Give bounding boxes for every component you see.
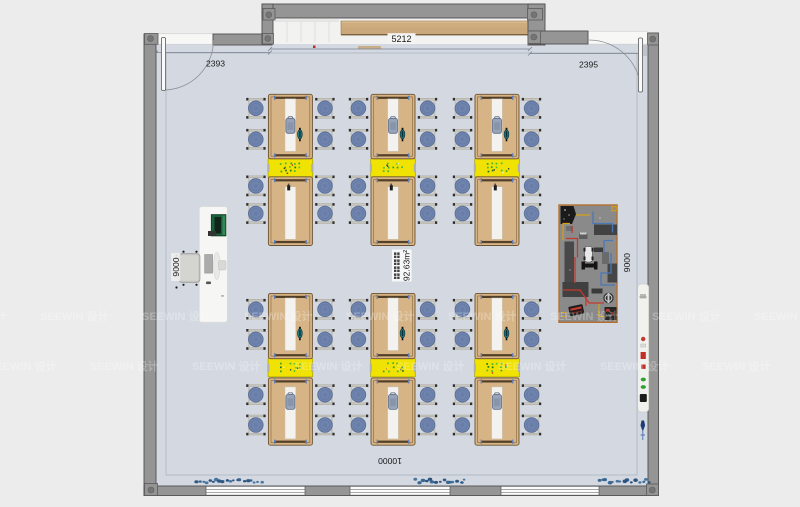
svg-text:9000: 9000 (622, 253, 632, 272)
svg-text:SEEWIN 设计: SEEWIN 设计 (0, 359, 56, 373)
svg-text:SEEWIN 设计: SEEWIN 设计 (192, 359, 260, 373)
svg-text:SEEWIN 设计: SEEWIN 设计 (652, 309, 720, 323)
svg-text:SEEWIN 设计: SEEWIN 设计 (294, 359, 362, 373)
svg-text:SEEWIN 设计: SEEWIN 设计 (90, 359, 158, 373)
svg-text:SEEWIN 设计: SEEWIN 设计 (550, 309, 618, 323)
svg-text:SEEWIN 设计: SEEWIN 设计 (600, 359, 668, 373)
svg-text:SEEWIN 设计: SEEWIN 设计 (244, 309, 312, 323)
svg-text:SEEWIN 设计: SEEWIN 设计 (448, 309, 516, 323)
svg-text:2393: 2393 (206, 59, 225, 69)
svg-text:SEEWIN 设计: SEEWIN 设计 (498, 359, 566, 373)
svg-text:9000: 9000 (171, 257, 181, 276)
svg-text:SEEWIN 设计: SEEWIN 设计 (396, 359, 464, 373)
svg-text:SEEWIN 设计: SEEWIN 设计 (346, 309, 414, 323)
svg-text:SEEWIN 设计: SEEWIN 设计 (754, 309, 800, 323)
svg-text:2395: 2395 (579, 60, 598, 70)
svg-text:5212: 5212 (391, 34, 411, 44)
svg-text:SEEWIN 设计: SEEWIN 设计 (702, 359, 770, 373)
svg-text:SEEWIN 设计: SEEWIN 设计 (0, 309, 6, 323)
svg-text:SEEWIN 设计: SEEWIN 设计 (142, 309, 210, 323)
svg-text:10000: 10000 (378, 456, 402, 466)
svg-text:SEEWIN 设计: SEEWIN 设计 (40, 309, 108, 323)
svg-text:92.63m²: 92.63m² (401, 250, 411, 281)
